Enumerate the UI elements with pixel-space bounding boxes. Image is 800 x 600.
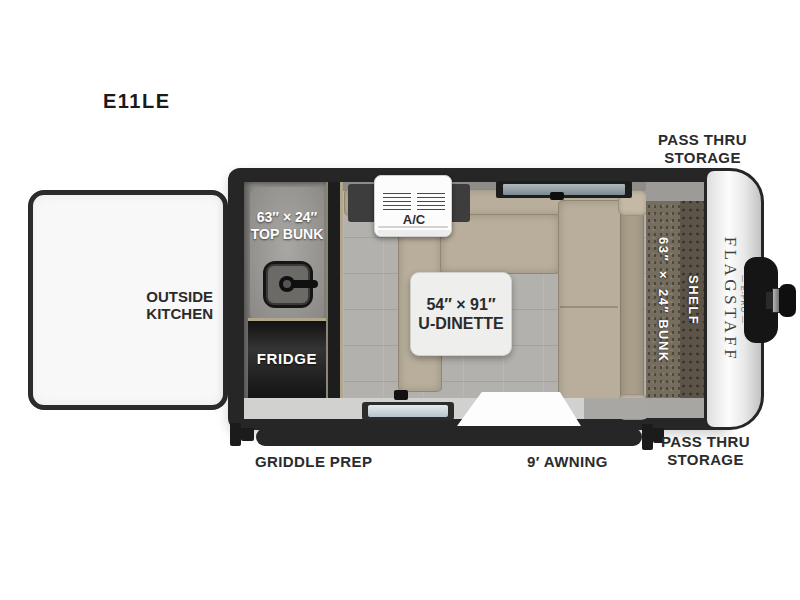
awning-label: 9′ AWNING — [505, 453, 630, 471]
outside-kitchen: OUTSIDE KITCHEN — [28, 190, 228, 410]
dinette-cushion-middle — [440, 214, 560, 274]
pass-thru-storage-label-bottom: PASS THRU STORAGE — [643, 433, 768, 468]
fridge-label: FRIDGE — [257, 350, 317, 367]
ac-unit: A/C — [374, 175, 452, 237]
griddle-surface — [368, 405, 448, 417]
brand-name-label: FLAGSTAFF — [721, 236, 741, 362]
pass-thru-area-bottom — [646, 398, 704, 418]
shelf-label: SHELF — [686, 275, 701, 325]
griddle-knob — [394, 390, 408, 400]
awning-bracket-left-arm — [241, 428, 254, 441]
window-hatch-latch-center — [283, 280, 291, 288]
pass-thru-area-top — [646, 182, 704, 201]
roof-window-glass — [503, 184, 625, 195]
griddle-prep-label: GRIDDLE PREP — [255, 453, 372, 471]
ac-foot — [377, 230, 450, 236]
ac-seam — [378, 226, 448, 228]
dinette-table: 54″ × 91″ U-DINETTE — [410, 272, 512, 356]
ac-vents-icon — [383, 193, 411, 210]
dinette-label: 54″ × 91″ U-DINETTE — [418, 295, 503, 333]
top-bunk-label: 63″ × 24″ TOP BUNK — [244, 209, 330, 242]
shelf: SHELF — [680, 182, 706, 418]
dinette-backrest-right — [620, 202, 644, 414]
roof-window-latch — [550, 192, 564, 200]
side-bunk-label: 63″ × 24″ BUNK — [656, 237, 671, 363]
model-label: E11LE — [103, 90, 171, 113]
divider-wall — [326, 182, 343, 400]
entry-floor — [584, 398, 646, 419]
hitch-coupler — [779, 284, 796, 317]
awning-bar — [256, 428, 642, 446]
floorplan-canvas: E11LE PASS THRU STORAGE OUTSIDE KITCHEN … — [0, 0, 800, 600]
outside-kitchen-label: OUTSIDE KITCHEN — [146, 289, 213, 322]
pass-thru-storage-label-top: PASS THRU STORAGE — [640, 131, 765, 166]
cushion-seam — [560, 306, 618, 308]
fridge: FRIDGE — [248, 318, 326, 402]
side-bunk: 63″ × 24″ BUNK — [646, 182, 680, 418]
ac-vents-icon — [417, 193, 445, 210]
awning-bracket-left — [230, 423, 241, 446]
ac-label: A/C — [375, 212, 453, 227]
